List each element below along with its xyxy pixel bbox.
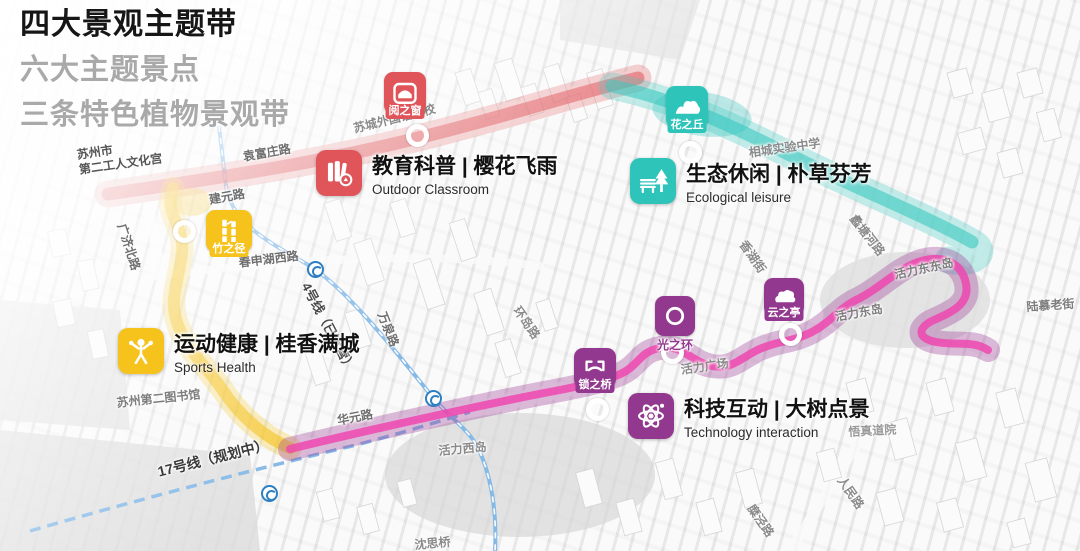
node-label: 花之丘 <box>668 118 707 133</box>
theme-title: 运动健康 | 桂香满城 <box>174 328 360 358</box>
theme-title: 教育科普 | 樱花飞雨 <box>372 150 558 180</box>
route-ring-marker <box>173 220 196 243</box>
page-subtitle: 六大主题景点 <box>20 56 290 85</box>
node-bamboo-path: 竹之径 <box>206 210 252 252</box>
metro-station-icon <box>261 485 278 502</box>
node-label: 锁之桥 <box>576 378 615 393</box>
node-lock-bridge: 锁之桥 <box>574 348 616 388</box>
route-ring-marker <box>406 124 429 147</box>
metro-station-icon <box>425 390 442 407</box>
theme-subtitle: Sports Health <box>174 360 360 375</box>
node-label: 云之亭 <box>765 306 804 321</box>
legend-titles: 四大景观主题带 六大主题景点 三条特色植物景观带 <box>20 4 290 130</box>
landscape-plan-map: 苏州市 第二工人文化宫 袁富庄路 苏城外国语学校 建元路 广济北路 春申湖西路 … <box>0 0 1080 551</box>
theme-technology: 科技互动 | 大树点景 Technology interaction <box>628 393 870 440</box>
theme-title: 科技互动 | 大树点景 <box>684 393 870 423</box>
theme-ecology: 生态休闲 | 朴草芬芳 Ecological leisure <box>630 158 872 205</box>
ring-icon <box>655 296 695 336</box>
bench-tree-icon <box>630 158 676 204</box>
node-label: 竹之径 <box>210 242 249 257</box>
theme-subtitle: Technology interaction <box>684 425 870 440</box>
route-ring-marker <box>779 323 802 346</box>
route-ring-marker <box>586 398 609 421</box>
metro-station-icon <box>307 261 324 278</box>
node-cloud-pavilion: 云之亭 <box>764 278 804 316</box>
page-title: 四大景观主题带 <box>20 10 290 40</box>
node-flower-hill: 花之丘 <box>666 86 708 128</box>
page-subtitle: 三条特色植物景观带 <box>20 101 290 130</box>
theme-education: 教育科普 | 樱花飞雨 Outdoor Classroom <box>316 150 558 197</box>
theme-title: 生态休闲 | 朴草芬芳 <box>686 158 872 188</box>
sports-person-icon <box>118 328 164 374</box>
node-label: 阅之窗 <box>386 104 425 119</box>
node-ring-of-light: 光之环 <box>655 296 695 336</box>
node-window-of-reading: 阅之窗 <box>384 72 426 114</box>
theme-sports: 运动健康 | 桂香满城 Sports Health <box>118 328 360 375</box>
books-icon <box>316 150 362 196</box>
node-label: 光之环 <box>657 336 693 353</box>
map-label: 沈思桥 <box>414 535 451 551</box>
atom-icon <box>628 393 674 439</box>
theme-subtitle: Ecological leisure <box>686 190 872 205</box>
theme-subtitle: Outdoor Classroom <box>372 182 558 197</box>
